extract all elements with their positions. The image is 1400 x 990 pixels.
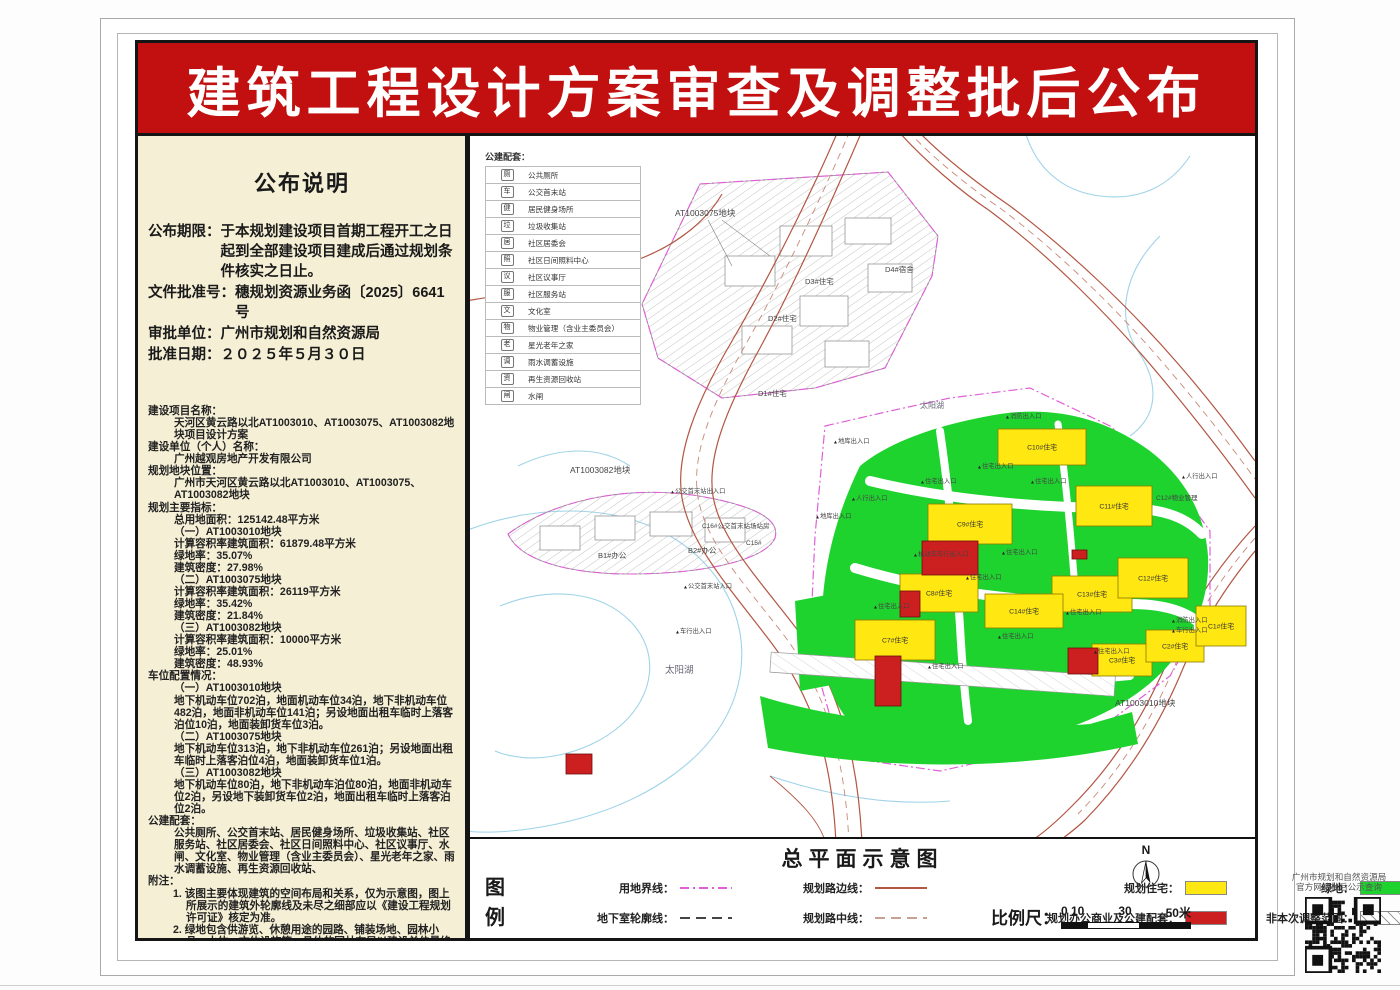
pubfac-label: 社区服务站 xyxy=(528,289,566,300)
pubfac-label: 社区居委会 xyxy=(528,238,566,249)
entrance-label: 住宅出入口 xyxy=(982,461,1013,470)
scale-bar-segments xyxy=(1061,922,1191,929)
publication-note-panel: 公布说明 公布期限： 于本规划建设项目首期工程开工之日起到全部建设项目建成后通过… xyxy=(135,136,468,941)
detail-line: （一）AT1003010地块 xyxy=(148,526,456,538)
pubfac-label: 物业管理（含业主委员会） xyxy=(528,323,619,334)
project-details: 建设项目名称：天河区黄云路以北AT1003010、AT1003075、AT100… xyxy=(148,405,456,941)
scan-edge-line xyxy=(0,985,1400,986)
entrance-label: 住宅出入口 xyxy=(1006,547,1037,556)
detail-line: 车位配置情况： xyxy=(148,670,456,682)
pubfac-icon: 居 xyxy=(501,237,514,249)
detail-line: 绿地率：35.07% xyxy=(148,550,456,562)
building-label: C10#住宅 xyxy=(1027,443,1057,452)
pubfac-icon: 资 xyxy=(501,373,514,385)
pubfac-row: 议社区议事厅 xyxy=(486,269,640,286)
office-public-building xyxy=(875,656,901,706)
pubfac-label: 文化室 xyxy=(528,306,551,317)
pubfac-icon: 健 xyxy=(501,203,514,215)
area-label: AT1003082地块 xyxy=(570,465,631,475)
entrance-label: 住宅出入口 xyxy=(1098,646,1129,655)
detail-line: （三）AT1003082地块 xyxy=(148,622,456,634)
detail-line: 建设单位（个人）名称： xyxy=(148,441,456,453)
entrance-label: 人行出入口 xyxy=(1186,471,1217,480)
pubfac-icon: 闸 xyxy=(501,390,514,402)
legend-item-road-edge: 规划路边线： xyxy=(732,873,927,903)
solid-brown-swatch xyxy=(875,887,927,889)
area-label: B1#办公 xyxy=(598,550,627,560)
detail-line: 绿地率：35.42% xyxy=(148,598,456,610)
area-label: C16#公交首末站场站房 xyxy=(702,521,770,530)
pubfac-table: 厕公共厕所车公交首末站健居民健身场所垃垃圾收集站居社区居委会照社区日间照料中心议… xyxy=(485,166,641,405)
site-plan-map: C10#住宅C9#住宅C11#住宅C13#住宅C14#住宅C12#住宅C8#住宅… xyxy=(470,136,1255,837)
dash-dark-swatch xyxy=(680,917,732,919)
building-label: C12#住宅 xyxy=(1138,574,1168,583)
pubfac-label: 公共厕所 xyxy=(528,170,558,181)
doc-no-value: 穗规划资源业务函〔2025〕6641号 xyxy=(235,283,456,323)
detail-line: 广州市天河区黄云路以北AT1003010、AT1003075、AT1003082… xyxy=(148,477,456,501)
detail-line: 广州越观房地产开发有限公司 xyxy=(148,453,456,465)
qr-caption: 广州市规划和自然资源局 官方网站批后公示查询 xyxy=(1289,872,1389,893)
pubfac-row: 资再生资源回收站 xyxy=(486,371,640,388)
scale-area: N 比例尺： 0 10 xyxy=(991,869,1241,935)
notice-block: 公布期限： 于本规划建设项目首期工程开工之日起到全部建设项目建成后通过规划条件核… xyxy=(148,222,456,365)
entrance-label: 车行出入口 xyxy=(1176,625,1207,634)
pubfac-row: 物物业管理（含业主委员会） xyxy=(486,320,640,337)
area-label: 太阳湖 xyxy=(665,664,694,676)
authority-label: 审批单位： xyxy=(148,324,221,344)
office-public-building xyxy=(566,754,592,774)
detail-line: 建设项目名称： xyxy=(148,405,456,417)
detail-line: 地下机动车位80泊，地下非机动车泊位80泊，地面非机动车位2泊，另设地下装卸货车… xyxy=(148,779,456,815)
area-label: B2#办公 xyxy=(688,545,717,555)
detail-line: 规划主要指标： xyxy=(148,502,456,514)
pubfac-label: 公交首末站 xyxy=(528,187,566,198)
pubfac-row: 闸水闸 xyxy=(486,388,640,405)
building-label: C2#住宅 xyxy=(1162,642,1188,651)
pubfac-icon: 物 xyxy=(501,322,514,334)
pubfac-row: 文文化室 xyxy=(486,303,640,320)
pubfac-row: 车公交首末站 xyxy=(486,184,640,201)
pubfac-label: 水闸 xyxy=(528,391,543,402)
pubfac-row: 健居民健身场所 xyxy=(486,201,640,218)
pubfac-row: 照社区日间照料中心 xyxy=(486,252,640,269)
pubfac-label: 社区议事厅 xyxy=(528,272,566,283)
date-label: 批准日期： xyxy=(148,345,221,365)
legend-item-site-boundary: 用地界线： xyxy=(522,873,732,903)
pubfac-row: 服社区服务站 xyxy=(486,286,640,303)
period-label: 公布期限： xyxy=(148,222,221,282)
detail-line: （三）AT1003082地块 xyxy=(148,767,456,779)
legend-strip: 总平面示意图 图例 用地界线： 地下室轮廓线： 规划路边线： xyxy=(470,837,1255,938)
entrance-label: 公交首末站出入口 xyxy=(675,486,725,495)
doc-no-label: 文件批准号： xyxy=(148,283,235,323)
approval-date-row: 批准日期： ２０２５年５月３０日 xyxy=(148,345,456,365)
building-label: C13#住宅 xyxy=(1077,590,1107,599)
area-label: C15# xyxy=(746,540,762,547)
pubfac-icon: 车 xyxy=(501,186,514,198)
area-label: AT1003075地块 xyxy=(675,208,736,218)
legend-block: 图例 用地界线： 地下室轮廓线： 规划路边线： xyxy=(482,873,1400,933)
entrance-label: 住宅出入口 xyxy=(970,572,1001,581)
pubfac-icon: 文 xyxy=(501,305,514,317)
pubfac-legend-title: 公建配套： xyxy=(485,150,641,163)
area-label: C12#物业管理 xyxy=(1156,493,1198,502)
entrance-label: 住宅出入口 xyxy=(1070,607,1101,616)
building-label: C8#住宅 xyxy=(926,589,952,598)
legend-item-road-center: 规划路中线： xyxy=(732,903,927,933)
pubfac-row: 调雨水调蓄设施 xyxy=(486,354,640,371)
entrance-label: 住宅出入口 xyxy=(925,476,956,485)
block-AT1003075 xyxy=(642,172,938,398)
detail-line: 绿地率：25.01% xyxy=(148,646,456,658)
pubfac-label: 社区日间照料中心 xyxy=(528,255,589,266)
detail-line: （一）AT1003010地块 xyxy=(148,682,456,694)
area-label: D1#住宅 xyxy=(758,388,787,398)
area-label: D3#住宅 xyxy=(805,276,834,286)
detail-line: 地下机动车位313泊，地下非机动车位261泊；另设地面出租车临时上落客泊位4泊，… xyxy=(148,743,456,767)
pubfac-row: 居社区居委会 xyxy=(486,235,640,252)
entrance-label: 人行出入口 xyxy=(856,493,887,502)
pubfac-row: 厕公共厕所 xyxy=(486,167,640,184)
building-label: C7#住宅 xyxy=(882,636,908,645)
area-label: 太阳湖 xyxy=(920,400,944,410)
entrance-label: 机动车车行出入口 xyxy=(918,549,968,558)
north-label: N xyxy=(1129,843,1163,857)
date-value: ２０２５年５月３０日 xyxy=(221,345,457,365)
dashdot-magenta-swatch xyxy=(680,887,732,889)
dash-light-swatch xyxy=(875,917,927,919)
detail-line: 公共厕所、公交首末站、居民健身场所、垃圾收集站、社区服务站、社区居委会、社区日间… xyxy=(148,827,456,875)
entrance-label: 车行出入口 xyxy=(680,626,711,635)
building-label: C3#住宅 xyxy=(1109,656,1135,665)
pubfac-row: 老星光老年之家 xyxy=(486,337,640,354)
detail-line: 总用地面积：125142.48平方米 xyxy=(148,514,456,526)
detail-line: 1. 该图主要体现建筑的空间布局和关系，仅为示意图，图上所展示的建筑外轮廓线及未… xyxy=(148,888,456,924)
north-compass: N xyxy=(1129,843,1163,896)
pubfac-legend: 公建配套： 厕公共厕所车公交首末站健居民健身场所垃垃圾收集站居社区居委会照社区日… xyxy=(485,150,641,405)
area-label: D2#住宅 xyxy=(768,313,797,323)
entrance-label: 住宅出入口 xyxy=(1002,631,1033,640)
entrance-label: 地库出入口 xyxy=(838,436,869,445)
pubfac-label: 再生资源回收站 xyxy=(528,374,581,385)
entrance-label: 消防出入口 xyxy=(1176,615,1207,624)
pubfac-label: 垃圾收集站 xyxy=(528,221,566,232)
detail-line: （二）AT1003075地块 xyxy=(148,574,456,586)
pubfac-icon: 垃 xyxy=(501,220,514,232)
detail-line: 公建配套： xyxy=(148,815,456,827)
detail-line: 建筑密度：21.84% xyxy=(148,610,456,622)
building-label: C11#住宅 xyxy=(1099,502,1129,511)
detail-line: 计算容积率建筑面积：26119平方米 xyxy=(148,586,456,598)
area-label: AT1003010地块 xyxy=(1115,698,1176,708)
entrance-label: 住宅出入口 xyxy=(932,661,963,670)
detail-line: 2. 绿地包含供游览、休憩用途的园路、铺装场地、园林小品、水体、文体设施等，具体… xyxy=(148,924,456,941)
approval-doc-row: 文件批准号： 穗规划资源业务函〔2025〕6641号 xyxy=(148,283,456,323)
pubfac-icon: 议 xyxy=(501,271,514,283)
scale-bar: 比例尺： 0 10 30 50米 xyxy=(991,904,1191,929)
area-label: D4#宿舍 xyxy=(885,264,914,274)
qr-block: 广州市规划和自然资源局 官方网站批后公示查询 xyxy=(1293,872,1393,978)
banner-title: 建筑工程设计方案审查及调整批后公布 xyxy=(135,40,1258,136)
building-label: C9#住宅 xyxy=(957,520,983,529)
detail-line: 计算容积率建筑面积：61879.48平方米 xyxy=(148,538,456,550)
building-label: C1#住宅 xyxy=(1208,622,1234,631)
entrance-label: 住宅出入口 xyxy=(878,601,909,610)
pubfac-icon: 照 xyxy=(501,254,514,266)
detail-line: 地下机动车位702泊，地面机动车位34泊，地下非机动车位482泊，地面非机动车位… xyxy=(148,695,456,731)
pubfac-icon: 厕 xyxy=(501,169,514,181)
office-public-building xyxy=(922,541,978,575)
pubfac-row: 垃垃圾收集站 xyxy=(486,218,640,235)
compass-icon xyxy=(1129,857,1163,891)
entrance-label: 消防出入口 xyxy=(1010,411,1041,420)
qr-code xyxy=(1305,897,1381,973)
period-value: 于本规划建设项目首期工程开工之日起到全部建设项目建成后通过规划条件核实之日止。 xyxy=(221,222,457,282)
block-AT1003082 xyxy=(508,492,776,574)
entrance-label: 公交首末站入口 xyxy=(688,581,732,590)
detail-line: 计算容积率建筑面积：10000平方米 xyxy=(148,634,456,646)
approval-authority-row: 审批单位： 广州市规划和自然资源局 xyxy=(148,324,456,344)
panel-title: 公布说明 xyxy=(148,166,456,198)
legend-item-basement-outline: 地下室轮廓线： xyxy=(522,903,732,933)
legend-word: 图例 xyxy=(482,873,508,933)
pubfac-icon: 调 xyxy=(501,356,514,368)
detail-line: 天河区黄云路以北AT1003010、AT1003075、AT1003082地块项… xyxy=(148,417,456,441)
publication-period-row: 公布期限： 于本规划建设项目首期工程开工之日起到全部建设项目建成后通过规划条件核… xyxy=(148,222,456,282)
authority-value: 广州市规划和自然资源局 xyxy=(221,324,457,344)
scale-label: 比例尺： xyxy=(991,904,1059,929)
pubfac-label: 居民健身场所 xyxy=(528,204,574,215)
entrance-label: 住宅出入口 xyxy=(1035,476,1066,485)
detail-line: 规划地块位置： xyxy=(148,465,456,477)
detail-line: 建筑密度：27.98% xyxy=(148,562,456,574)
detail-line: 建筑密度：48.93% xyxy=(148,658,456,670)
entrance-label: 地库出入口 xyxy=(820,511,851,520)
pubfac-label: 星光老年之家 xyxy=(528,340,574,351)
site-plan-panel: C10#住宅C9#住宅C11#住宅C13#住宅C14#住宅C12#住宅C8#住宅… xyxy=(468,136,1258,941)
detail-line: 附注： xyxy=(148,875,456,887)
office-public-building xyxy=(1072,550,1087,559)
building-label: C14#住宅 xyxy=(1009,607,1039,616)
notice-content: 建筑工程设计方案审查及调整批后公布 公布说明 公布期限： 于本规划建设项目首期工… xyxy=(135,40,1258,947)
pubfac-icon: 老 xyxy=(501,339,514,351)
pubfac-label: 雨水调蓄设施 xyxy=(528,357,574,368)
detail-line: （二）AT1003075地块 xyxy=(148,731,456,743)
pubfac-icon: 服 xyxy=(501,288,514,300)
